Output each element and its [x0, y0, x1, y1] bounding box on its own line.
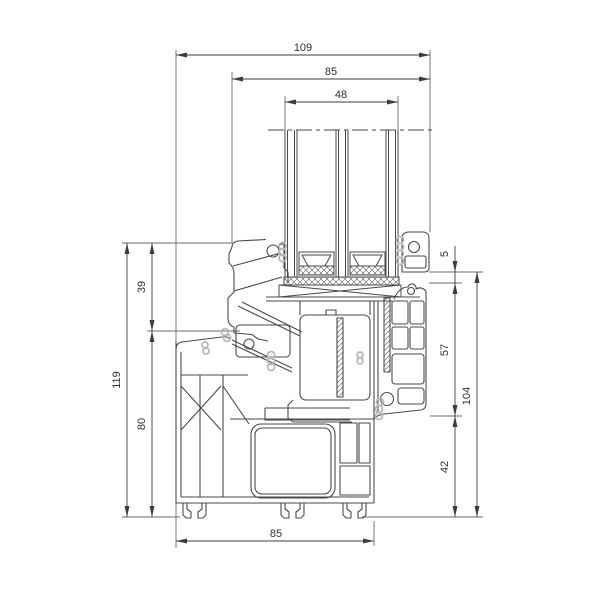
window-section-drawing: 109 85 48 85 119 39 80 [0, 0, 600, 600]
spacer-bar-right [350, 252, 385, 275]
dimension-85-top: 85 [232, 66, 430, 82]
gasket-frame-left-edge [202, 342, 209, 354]
dim-109-label: 109 [294, 42, 312, 54]
technical-drawing-canvas: 109 85 48 85 119 39 80 [0, 0, 600, 600]
glazing-bead-left [228, 240, 302, 342]
dimension-85-bottom: 85 [176, 528, 374, 544]
steel-reinforcement [251, 424, 335, 498]
dim-42-label: 42 [439, 461, 451, 473]
dim-80-label: 80 [136, 418, 148, 430]
gasket-mid-right [357, 352, 363, 364]
frame-small-chambers [340, 423, 370, 495]
dimension-42: 42 [439, 416, 458, 517]
dimension-57: 57 [439, 283, 458, 416]
glazing-packer-x-brace [279, 285, 401, 297]
gasket-frame-sash-left [222, 329, 231, 342]
frame-left-chambers [181, 375, 249, 497]
dimension-39: 39 [136, 243, 155, 331]
dimension-109: 109 [176, 42, 430, 58]
dimension-48: 48 [285, 89, 398, 105]
spacer-bar-left [299, 252, 334, 275]
dim-39-label: 39 [136, 281, 148, 293]
dim-57-label: 57 [439, 344, 451, 356]
dim-104-label: 104 [461, 387, 473, 405]
dimension-104: 104 [461, 272, 480, 517]
dim-5-label: 5 [439, 251, 451, 257]
mounting-feet [183, 503, 366, 518]
dimension-80: 80 [136, 331, 155, 517]
sash-right-leg [402, 232, 429, 272]
gaskets [202, 237, 404, 420]
glass-pane-outer [285, 130, 297, 277]
dim-48-label: 48 [335, 89, 347, 101]
glass-pane-middle [336, 130, 348, 277]
dim-85-bottom-label: 85 [270, 528, 282, 540]
triple-glazing-unit [266, 130, 420, 301]
dim-119-label: 119 [111, 371, 123, 389]
dimension-119: 119 [111, 243, 130, 517]
dim-85-top-label: 85 [325, 66, 337, 78]
sash-lower-chamber [265, 298, 390, 422]
glazing-setting-strip [284, 277, 399, 285]
